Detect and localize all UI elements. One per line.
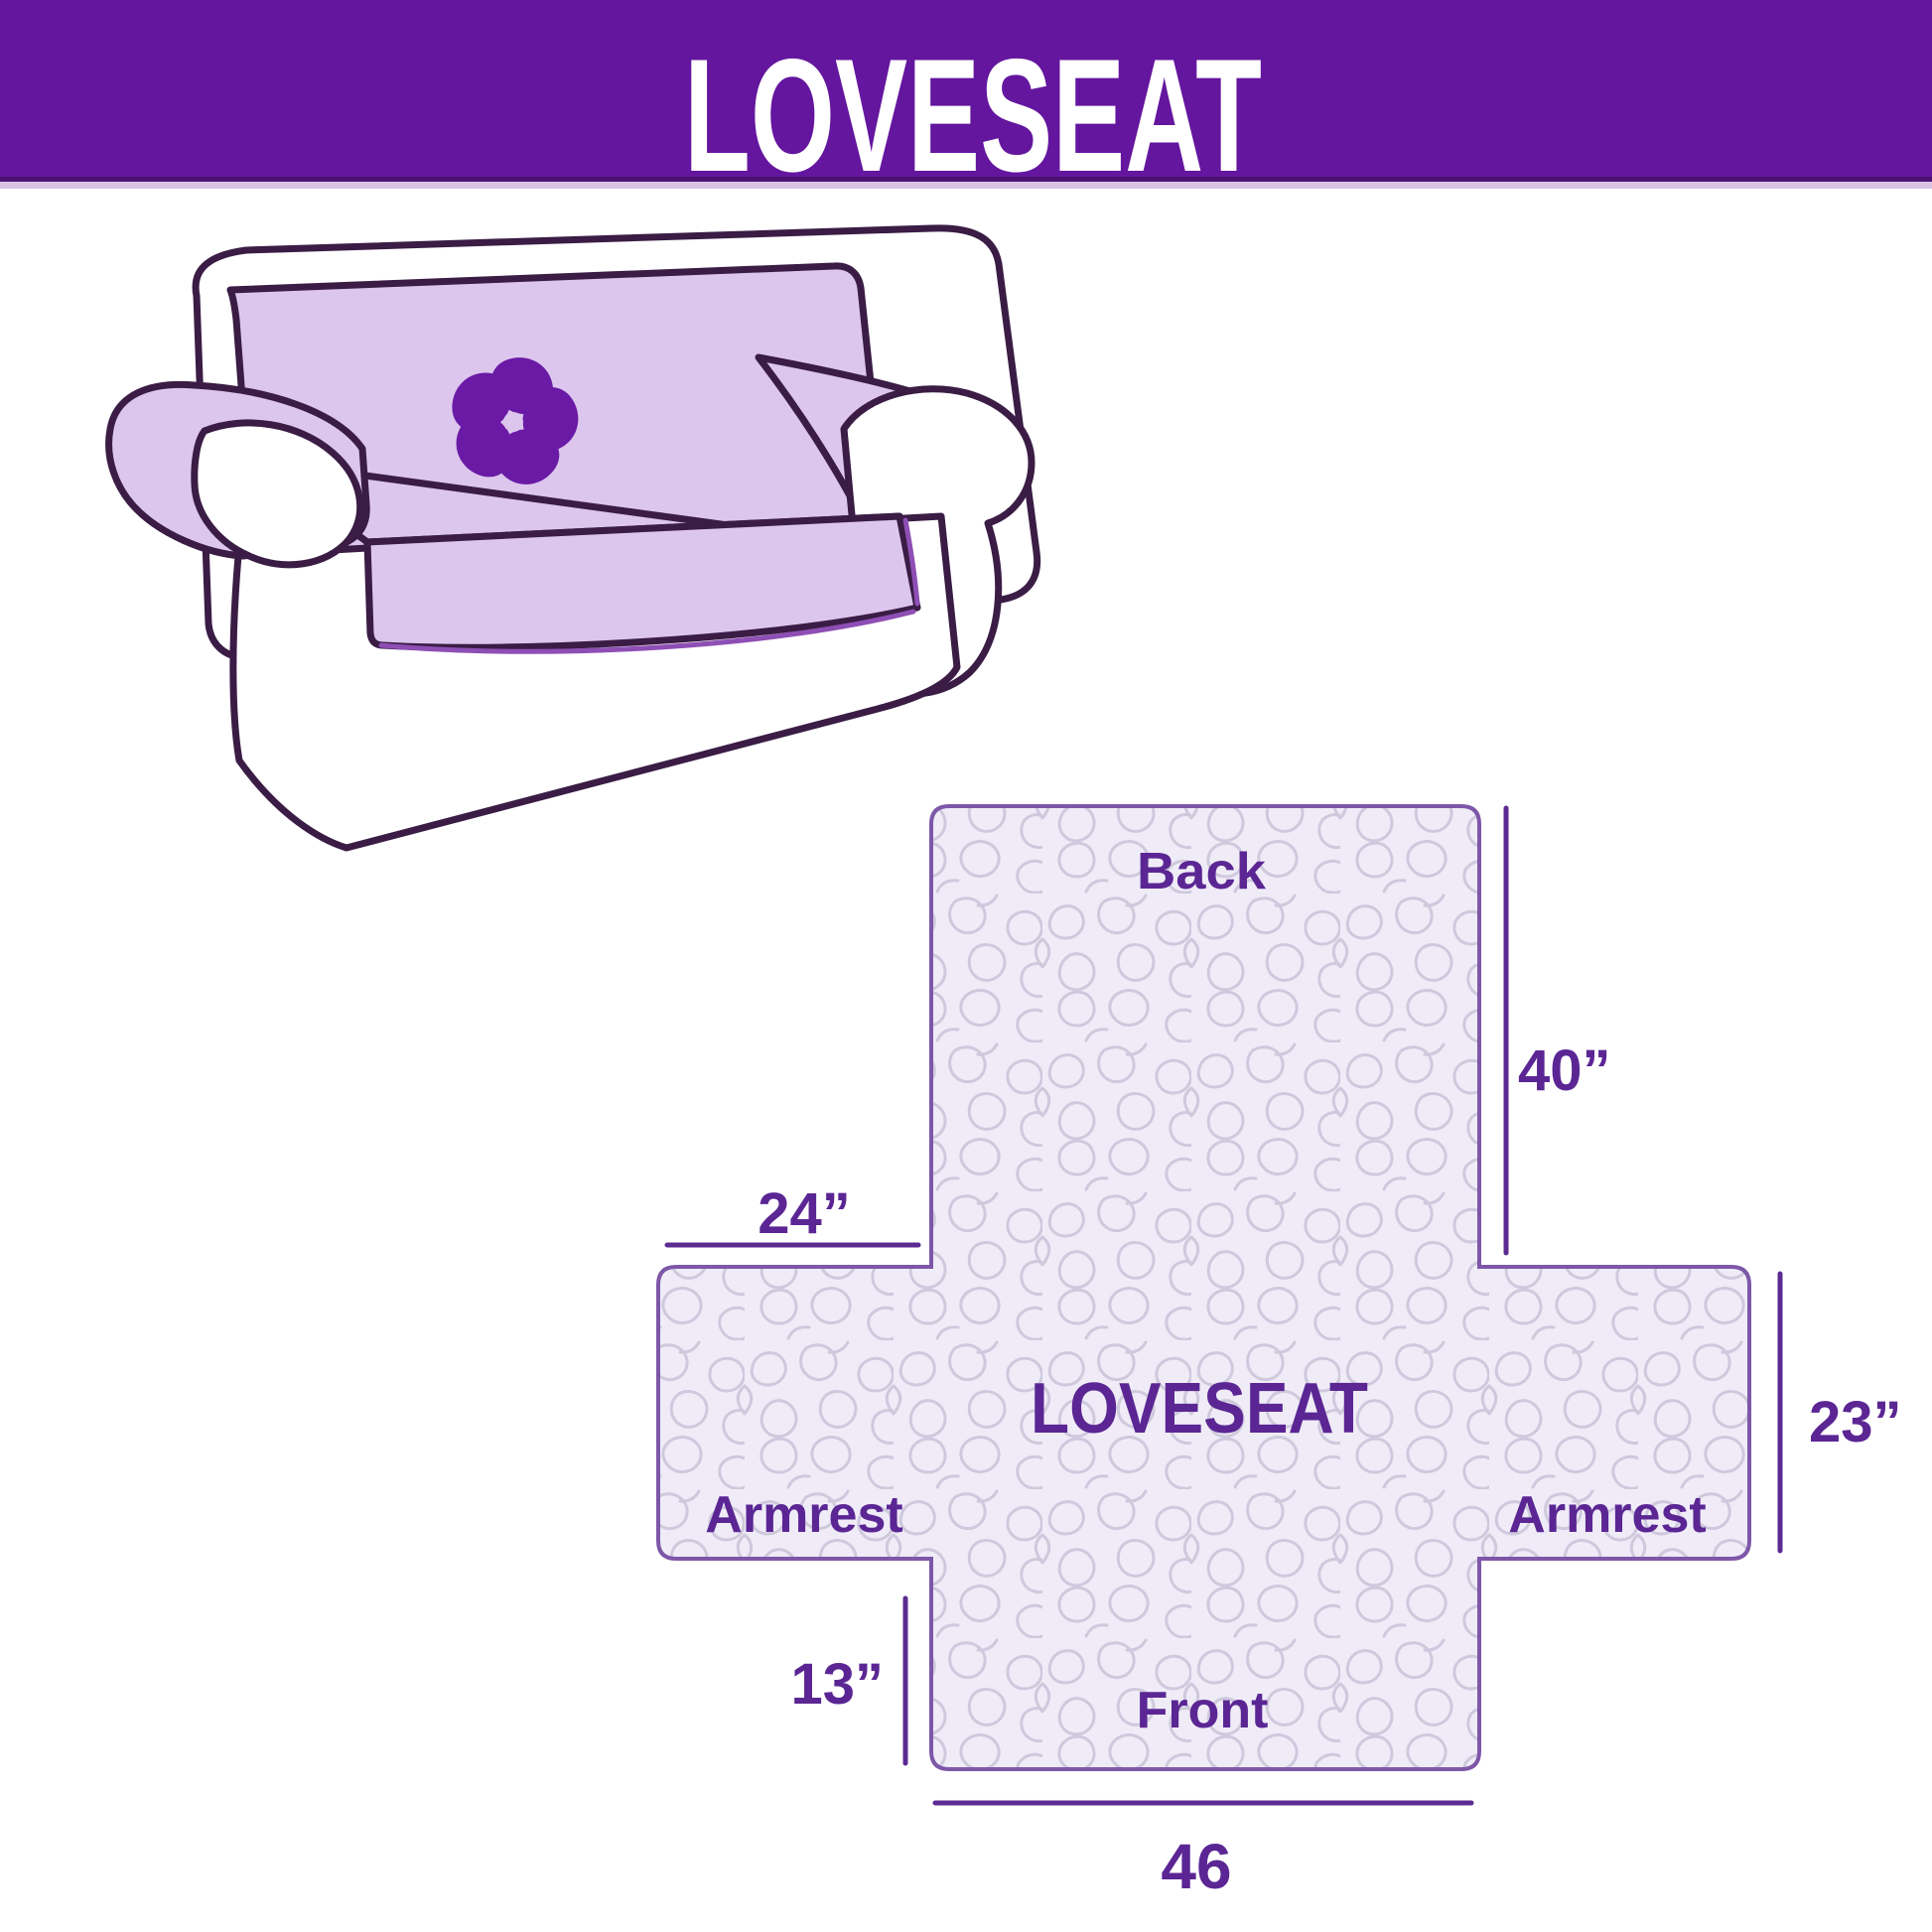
back-panel-label: Back	[1137, 843, 1266, 900]
front-panel-label: Front	[1137, 1682, 1269, 1739]
page-title: LOVESEAT	[684, 26, 1262, 206]
dim-armrest-top-width-label: 24”	[758, 1181, 851, 1246]
dim-front-width-label: 46	[1161, 1831, 1231, 1902]
loveseat-infographic: LOVESEAT	[0, 0, 1932, 1932]
loveseat-illustration	[109, 228, 1037, 848]
armrest-right-label: Armrest	[1508, 1486, 1706, 1544]
dim-armrest-side-height-label: 23”	[1809, 1390, 1902, 1454]
center-panel-label: LOVESEAT	[1031, 1369, 1368, 1449]
header-banner: LOVESEAT	[0, 0, 1932, 206]
cover-diagram: Back LOVESEAT Armrest Armrest Front 40” …	[658, 806, 1902, 1902]
infographic-canvas: LOVESEAT	[0, 0, 1932, 1932]
cover-shape	[658, 806, 1749, 1769]
armrest-left-label: Armrest	[705, 1486, 902, 1544]
dim-front-flap-height-label: 13”	[790, 1652, 884, 1717]
dim-back-height-label: 40”	[1518, 1038, 1611, 1103]
pinwheel-center-dot	[503, 412, 523, 432]
